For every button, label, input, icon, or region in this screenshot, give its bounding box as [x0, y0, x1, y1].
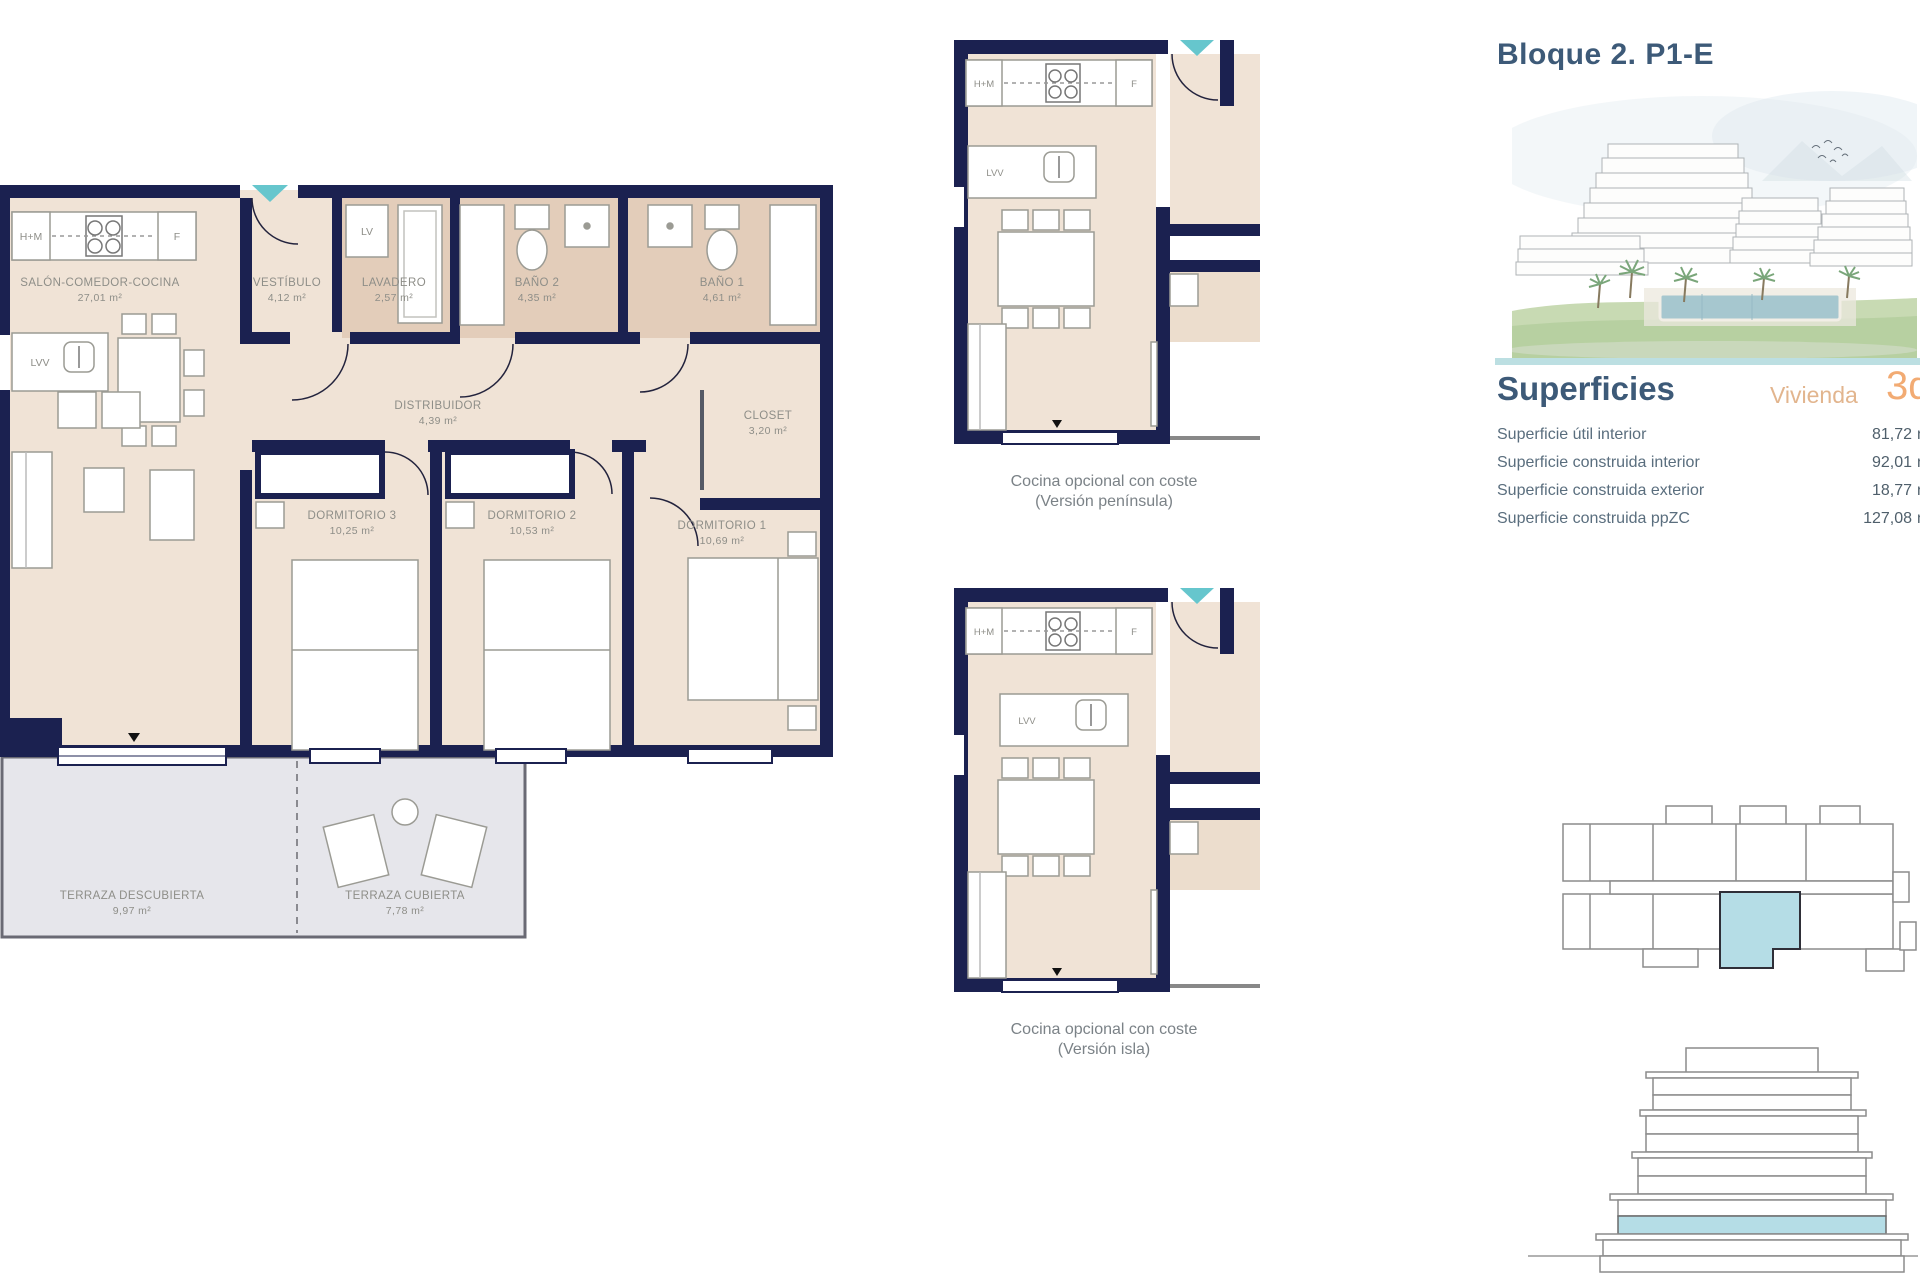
lvv-label: LVV: [30, 357, 49, 369]
slab-line: [1170, 436, 1260, 440]
highlighted-unit: [1720, 892, 1800, 968]
room-name: DORMITORIO 3: [308, 510, 397, 522]
cabinet: [1170, 274, 1198, 306]
sofa: [968, 324, 1006, 430]
elevation-base: [1528, 1234, 1918, 1272]
nightstand: [788, 706, 816, 730]
room-name: DORMITORIO 2: [488, 510, 577, 522]
bed: [688, 558, 818, 700]
unit-location-diagram: [1548, 784, 1920, 989]
sofa: [12, 452, 52, 568]
block-title: Bloque 2. P1-E: [1497, 38, 1714, 72]
lv-label: LV: [361, 226, 373, 238]
wardrobe: [258, 452, 382, 496]
shower: [460, 205, 504, 325]
building-rendering: [1512, 86, 1917, 358]
room-name: VESTÍBULO: [253, 276, 321, 289]
vivienda-number: 3d: [1886, 364, 1920, 409]
room-area: 4,35 m²: [518, 292, 556, 304]
surface-row-value: 81,72: [1700, 426, 1912, 444]
bed: [484, 560, 610, 750]
sideboard: [150, 470, 194, 540]
room-area: 4,61 m²: [703, 292, 741, 304]
elevation-outline: [1610, 1048, 1893, 1216]
hm-label: H+M: [974, 79, 994, 90]
room-name: DISTRIBUIDOR: [394, 400, 481, 412]
fridge-label: F: [174, 231, 180, 243]
room-name: BAÑO 1: [700, 276, 745, 289]
caption-line2: (Versión península): [948, 492, 1260, 512]
kitchen-option-caption: Cocina opcional con coste (Versión penín…: [948, 472, 1260, 512]
floor-plan-sheet: SALÓN-COMEDOR-COCINA 27,01 m² VESTÍBULO …: [0, 0, 1920, 1280]
room-area: 9,97 m²: [113, 905, 151, 917]
highlighted-floor: [1618, 1216, 1886, 1234]
window: [1002, 980, 1118, 992]
kitchen-option-plan-isla: H+M F LVV: [948, 560, 1260, 1012]
bed: [292, 560, 418, 750]
armchair: [102, 392, 140, 428]
caption-line1: Cocina opcional con coste: [948, 1020, 1260, 1040]
dining-table: [998, 232, 1094, 306]
room-name: BAÑO 2: [515, 276, 560, 289]
room-area: 27,01 m²: [78, 292, 123, 304]
room-area: 4,12 m²: [268, 292, 306, 304]
kitchen-option-plan-peninsula: H+M F LVV: [948, 12, 1260, 464]
toilet-icon: [515, 205, 549, 229]
nightstand: [788, 532, 816, 556]
surface-row-value: 127,08: [1700, 510, 1912, 528]
terrace-table: [392, 799, 418, 825]
entrance-arrow-icon: [1180, 40, 1214, 56]
divider: [1495, 358, 1920, 365]
room-area: 10,25 m²: [330, 525, 375, 537]
nightstand: [446, 502, 474, 528]
slab-line: [1170, 984, 1260, 988]
room-name: SALÓN-COMEDOR-COCINA: [20, 276, 179, 289]
kitchen-option-caption: Cocina opcional con coste (Versión isla): [948, 1020, 1260, 1060]
caption-line2: (Versión isla): [948, 1040, 1260, 1060]
shower: [770, 205, 816, 325]
building-elevation-diagram: [1528, 1042, 1918, 1274]
room-name: CLOSET: [744, 410, 792, 422]
armchair: [58, 392, 96, 428]
coffee-table: [84, 468, 124, 512]
caption-line1: Cocina opcional con coste: [948, 472, 1260, 492]
room-name: DORMITORIO 1: [678, 520, 767, 532]
nightstand: [256, 502, 284, 528]
fridge-label: F: [1131, 79, 1137, 90]
wardrobe: [448, 452, 572, 496]
dining-table: [998, 780, 1094, 854]
window-edge: [1151, 342, 1157, 426]
room-area: 10,53 m²: [510, 525, 555, 537]
window-edge: [1151, 890, 1157, 974]
superficies-heading: Superficies: [1497, 370, 1675, 408]
sofa: [968, 872, 1006, 978]
toilet-icon: [705, 205, 739, 229]
surface-row-value: 92,01: [1700, 454, 1912, 472]
room-area: 2,57 m²: [375, 292, 413, 304]
room-name: TERRAZA DESCUBIERTA: [60, 890, 205, 902]
room-area: 4,39 m²: [419, 415, 457, 427]
room-area: 3,20 m²: [749, 425, 787, 437]
left-wall-window: [0, 335, 10, 390]
main-floor-plan: SALÓN-COMEDOR-COCINA 27,01 m² VESTÍBULO …: [0, 150, 840, 960]
lvv-label: LVV: [986, 168, 1004, 179]
room-name: TERRAZA CUBIERTA: [345, 890, 465, 902]
lvv-label: LVV: [1018, 716, 1036, 727]
surface-row-value: 18,77: [1700, 482, 1912, 500]
room-area: 7,78 m²: [386, 905, 424, 917]
room-name: LAVADERO: [362, 277, 426, 289]
left-wall-window: [954, 187, 964, 227]
window: [1002, 432, 1118, 444]
hm-label: H+M: [20, 231, 42, 243]
vivienda-label: Vivienda: [1770, 382, 1858, 409]
fridge-label: F: [1131, 627, 1137, 638]
left-wall-window: [954, 735, 964, 775]
entrance-arrow-icon: [1180, 588, 1214, 604]
hm-label: H+M: [974, 627, 994, 638]
room-area: 10,69 m²: [700, 535, 745, 547]
cabinet: [1170, 822, 1198, 854]
